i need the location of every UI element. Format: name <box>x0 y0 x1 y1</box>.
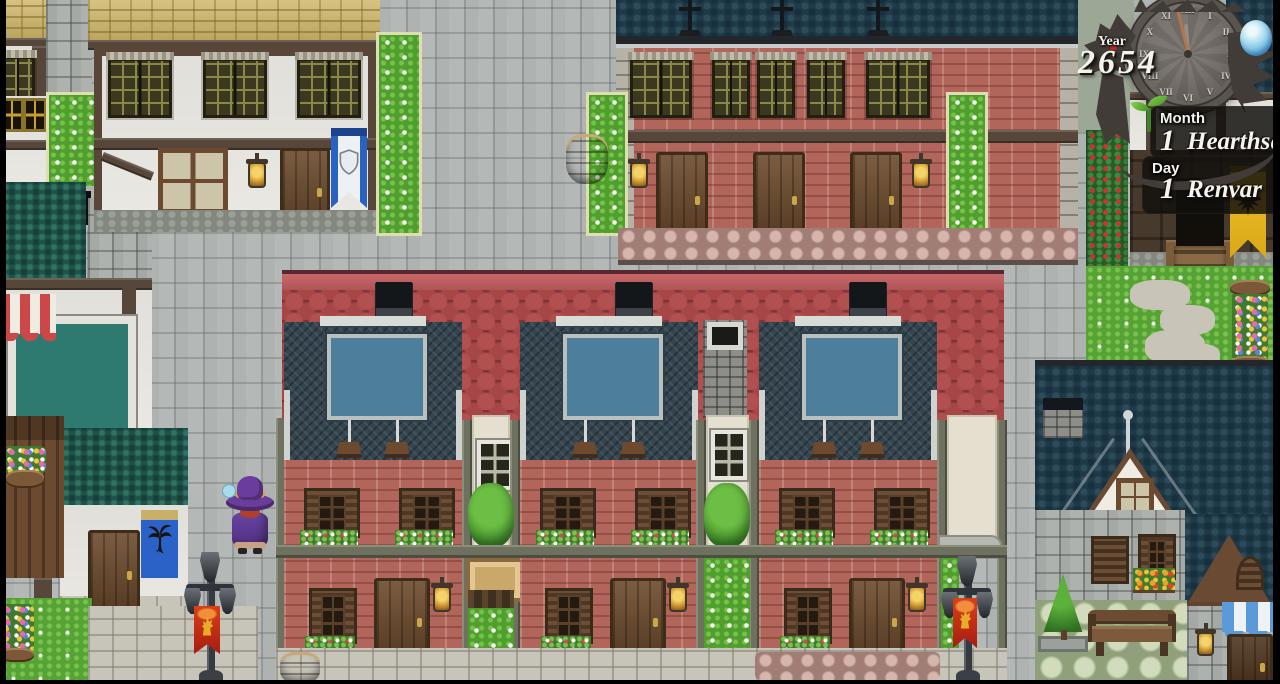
bench <box>1088 610 1176 658</box>
basket-base <box>6 470 44 488</box>
year-value: 2654 <box>1078 44 1158 82</box>
window-flower-box <box>631 530 689 546</box>
day-name: Renvar <box>1187 176 1262 204</box>
pink-cobble-walk <box>755 652 940 680</box>
letterbox-bottom <box>0 680 1280 684</box>
house-gap <box>696 272 759 684</box>
shuttered-window <box>630 58 692 118</box>
bush <box>468 483 514 547</box>
dormer-trim <box>759 390 765 462</box>
roof-hatch <box>859 420 885 458</box>
street-lamp <box>941 556 993 684</box>
flower-planter <box>1232 294 1268 358</box>
flowering-hedge <box>46 92 100 190</box>
hat-charm <box>222 484 236 498</box>
plant-shop-banner <box>141 510 178 578</box>
clock-numeral: X <box>1139 26 1161 38</box>
flowering-hedge <box>946 92 988 236</box>
floor-beam <box>276 545 1007 558</box>
topiary-tree <box>1042 574 1084 652</box>
cream-wall <box>947 415 997 549</box>
window-flower-box <box>870 530 928 546</box>
month-name: Hearthseek <box>1187 128 1280 156</box>
skylight-panel <box>327 334 427 420</box>
skylight-panel <box>563 334 663 420</box>
four-pane-window <box>158 148 228 214</box>
shuttered-window <box>297 58 361 118</box>
wall-lantern <box>433 586 451 612</box>
wall-lantern <box>1197 632 1214 656</box>
tenement-door[interactable] <box>656 152 708 236</box>
wizard-hat-top <box>237 476 263 500</box>
row-house <box>284 272 462 684</box>
striped-awning <box>1222 602 1273 632</box>
lion-emblem <box>958 609 973 630</box>
orange-flower-box <box>1133 568 1175 590</box>
tenement-door[interactable] <box>850 152 902 236</box>
game-screenshot: XII I II III IV V VI VII VIII IX X XI Ye… <box>0 0 1280 684</box>
tenement-door[interactable] <box>753 152 805 236</box>
timber-post <box>749 420 759 658</box>
dormer-trim <box>284 390 290 462</box>
flowering-hedge <box>376 32 422 236</box>
roof-hatch <box>336 420 362 458</box>
dormer-ledge <box>795 316 901 326</box>
foot <box>238 548 247 554</box>
row-house <box>759 272 937 684</box>
house-door[interactable] <box>88 530 140 610</box>
planter-box <box>1038 636 1088 652</box>
shuttered-window <box>712 58 750 118</box>
day-number: 1 <box>1160 172 1175 206</box>
timber-beam <box>620 130 1078 143</box>
small-window <box>711 430 747 480</box>
house-door[interactable] <box>849 578 905 656</box>
player-character[interactable] <box>226 474 274 554</box>
clock-numeral: VI <box>1177 92 1199 104</box>
plant-emblem <box>147 523 173 555</box>
house-gap <box>462 272 520 684</box>
house-door[interactable] <box>610 578 666 656</box>
month-number: 1 <box>1160 124 1175 158</box>
stone-wall <box>46 0 92 96</box>
window-flower-box <box>300 530 358 546</box>
bush <box>704 483 750 547</box>
skylight-panel <box>802 334 902 420</box>
clock-numeral: V <box>1199 86 1221 98</box>
wall-lantern <box>912 162 930 188</box>
dormer-ledge <box>320 316 426 326</box>
louvered-shutter <box>1091 536 1129 584</box>
barrel <box>566 134 608 184</box>
wall-lantern <box>669 586 687 612</box>
row-house <box>520 272 698 684</box>
roof-corner <box>0 0 46 40</box>
wall-lantern <box>248 162 266 188</box>
yellow-shingle-roof <box>88 0 380 44</box>
shuttered-window <box>757 58 795 118</box>
dormer-ledge <box>556 316 662 326</box>
dormer-trim <box>520 390 526 462</box>
foot <box>253 548 262 554</box>
clock-center-cap <box>1184 50 1192 58</box>
letterbox-left <box>0 0 6 684</box>
foundation <box>94 210 376 232</box>
shield-emblem <box>338 149 360 175</box>
house-door[interactable] <box>374 578 430 656</box>
chimney <box>1043 398 1083 438</box>
window-flower-box <box>775 530 833 546</box>
roof-hatch <box>620 420 646 458</box>
shuttered-window <box>108 58 172 118</box>
walk-edge <box>618 260 1078 265</box>
wood-railing <box>468 590 514 610</box>
striped-awning <box>0 294 56 334</box>
water-drop-icon <box>1240 20 1272 56</box>
roof-hatch <box>384 420 410 458</box>
roof-hatch <box>572 420 598 458</box>
street-lamp <box>184 552 236 684</box>
flowering-hedge <box>704 558 750 654</box>
pink-cobble-walk <box>618 228 1078 262</box>
game-viewport[interactable]: XII I II III IV V VI VII VIII IX X XI Ye… <box>0 0 1280 684</box>
wall-lantern <box>908 586 926 612</box>
window-flower-box <box>395 530 453 546</box>
lattice-window <box>23 98 47 132</box>
letterbox-right <box>1273 0 1280 684</box>
wooden-balcony <box>0 416 64 578</box>
window-flower-box <box>536 530 594 546</box>
hud-datetime: XII I II III IV V VI VII VIII IX X XI Ye… <box>1070 0 1280 218</box>
shuttered-window <box>866 58 930 118</box>
roof-hatch <box>811 420 837 458</box>
shuttered-window <box>807 58 845 118</box>
shuttered-window <box>203 58 267 118</box>
shop-door[interactable] <box>1227 634 1273 684</box>
wall-lantern <box>630 162 648 188</box>
lion-emblem <box>200 616 215 637</box>
